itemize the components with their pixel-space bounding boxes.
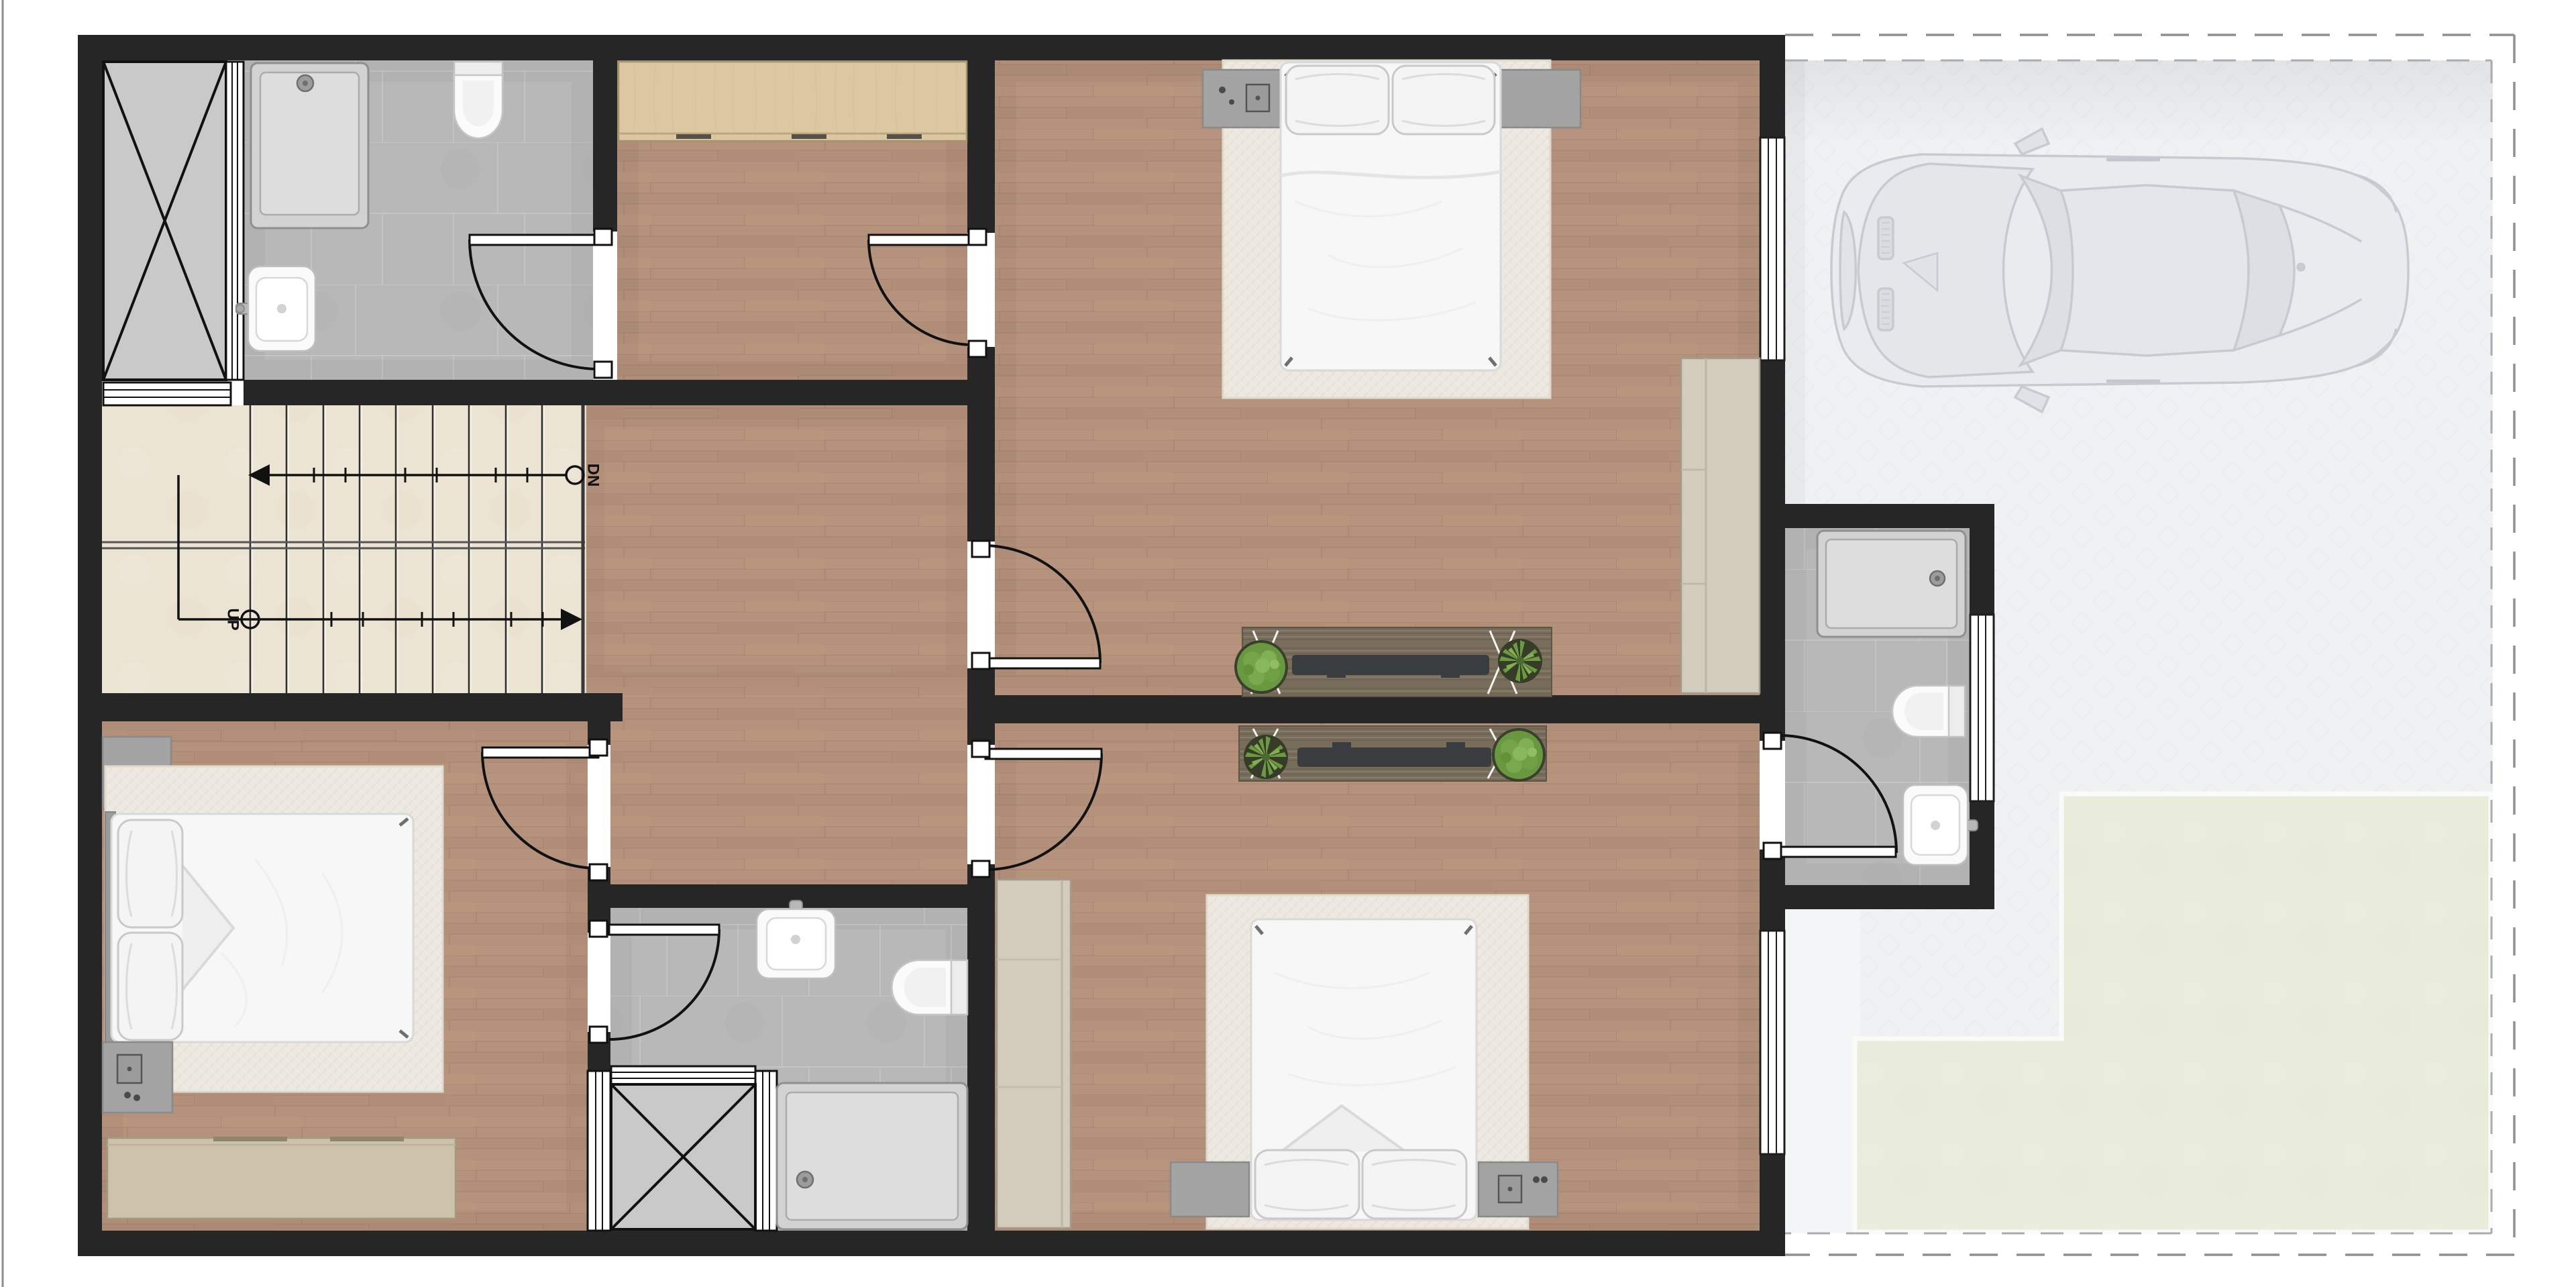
svg-text:UP: UP [224, 608, 242, 630]
